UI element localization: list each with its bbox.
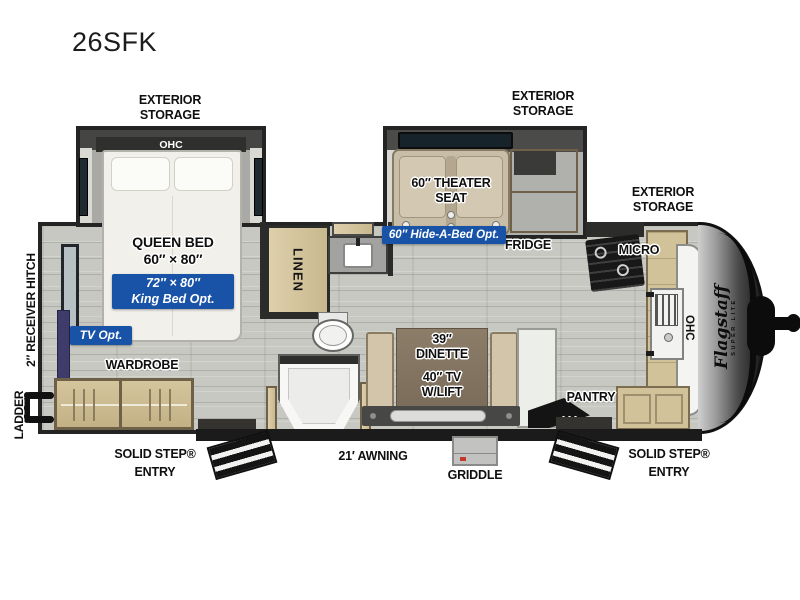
king-opt-size: 72″ × 80″ <box>116 276 230 292</box>
sink-handle-bottom <box>646 351 654 356</box>
tv-lift-line2: W/LIFT <box>398 385 486 400</box>
sink-faucet <box>664 333 673 342</box>
wardrobe-divider <box>119 381 122 427</box>
wardrobe-hanger-1 <box>73 389 75 421</box>
tv-lift-line1: 40″ TV <box>398 370 486 385</box>
tv-option-badge: TV Opt. <box>70 326 132 345</box>
exterior-storage-label-theater: EXTERIOR STORAGE <box>483 89 603 119</box>
tv-lift-screen <box>390 410 486 422</box>
shower <box>278 354 360 432</box>
brand-name: Flagstaff <box>714 257 731 397</box>
front-cap-brand: Flagstaff SUPER LITE <box>714 257 744 397</box>
pantry-label: PANTRY <box>560 390 622 405</box>
wardrobe <box>54 378 194 430</box>
fridge-cabinet-seam <box>512 191 576 193</box>
bedroom-window-right <box>254 158 263 216</box>
page-title: 26SFK <box>72 27 157 58</box>
toilet <box>310 312 356 354</box>
bath-vanity <box>328 236 388 274</box>
hitch-coupler-ball <box>786 314 800 332</box>
sink-drying-rack <box>655 294 678 326</box>
bath-sink <box>343 243 373 268</box>
wardrobe-hanger-2 <box>83 389 85 421</box>
theater-seat-label: 60″ THEATER SEAT <box>396 176 506 206</box>
wardrobe-hanger-5 <box>159 389 161 421</box>
floorplan-canvas: 26SFK OHC LINEN <box>0 0 800 600</box>
tv-lift-bolt-left <box>370 413 376 419</box>
theater-seat-line1: 60″ THEATER <box>396 176 506 191</box>
tv-lift-bar <box>362 406 520 426</box>
cabinet-door-right <box>655 394 683 424</box>
king-opt-label: King Bed Opt. <box>116 292 230 308</box>
toilet-seat <box>319 325 347 346</box>
queen-bed-name: QUEEN BED <box>108 234 238 251</box>
wardrobe-label: WARDROBE <box>82 358 202 373</box>
griddle <box>452 436 498 466</box>
dinette-label: 39″ DINETTE <box>398 332 486 362</box>
fridge-cabinet <box>510 149 578 233</box>
dinette-size: 39″ <box>398 332 486 347</box>
fridge-label: FRIDGE <box>498 238 558 253</box>
theater-cupholder-1 <box>447 211 455 219</box>
queen-bed-label: QUEEN BED 60″ × 80″ <box>108 234 238 267</box>
linen-label: LINEN <box>291 248 306 292</box>
cabinet-door-left <box>623 394 651 424</box>
kitchen-ohc-label-wrap: OHC <box>678 300 700 356</box>
brand-subtitle: SUPER LITE <box>732 257 738 397</box>
queen-bed-size: 60″ × 80″ <box>108 251 238 268</box>
solid-step-entry-label-right: SOLID STEP® ENTRY <box>614 446 724 481</box>
bedroom-tv <box>57 310 70 380</box>
ladder-label: LADDER <box>12 383 26 447</box>
griddle-label: GRIDDLE <box>442 468 508 483</box>
shower-wall-left <box>266 386 277 432</box>
wardrobe-hanger-4 <box>149 389 151 421</box>
vanity-upper-cabinet <box>332 222 374 236</box>
king-bed-option-badge: 72″ × 80″ King Bed Opt. <box>112 274 234 309</box>
ladder-icon <box>24 388 58 428</box>
bedroom-window-left <box>79 158 88 216</box>
theater-seat-line2: SEAT <box>396 191 506 206</box>
hide-a-bed-option-badge: 60″ Hide-A-Bed Opt. <box>382 226 506 244</box>
bedroom-ohc-label: OHC <box>159 139 182 151</box>
bath-faucet <box>356 238 360 246</box>
wardrobe-hanger-6 <box>169 389 171 421</box>
griddle-knob <box>460 457 466 461</box>
burner-1 <box>594 246 607 259</box>
shower-pan <box>288 368 350 424</box>
exterior-storage-label-front: EXTERIOR STORAGE <box>603 185 723 215</box>
micro-label: MICRO <box>610 243 668 258</box>
kitchen-ohc-label: OHC <box>683 315 695 341</box>
ladder-rail-bottom <box>26 416 54 423</box>
tv-lift-label: 40″ TV W/LIFT <box>398 370 486 400</box>
sink-handle-top <box>646 292 654 297</box>
solid-step-entry-label-left: SOLID STEP® ENTRY <box>100 446 210 481</box>
shower-threshold <box>280 356 358 364</box>
pillow-right <box>174 157 233 191</box>
fridge-cabinet-dark-top <box>514 151 556 175</box>
frame-rail <box>196 429 702 441</box>
exterior-storage-label-bedroom: EXTERIOR STORAGE <box>110 93 230 123</box>
pillow-left <box>111 157 170 191</box>
griddle-seam <box>454 453 496 454</box>
burner-2 <box>616 263 629 276</box>
kitchen-lower-cabinets <box>616 386 690 430</box>
ladder-rail-top <box>26 392 54 399</box>
theater-window <box>398 132 513 149</box>
receiver-hitch-label: 2″ RECEIVER HITCH <box>24 235 38 385</box>
tv-lift-bolt-right <box>506 413 512 419</box>
wardrobe-hanger-3 <box>93 389 95 421</box>
linen-closet: LINEN <box>266 225 330 315</box>
dinette-name: DINETTE <box>398 347 486 362</box>
awning-label: 21′ AWNING <box>318 449 428 464</box>
